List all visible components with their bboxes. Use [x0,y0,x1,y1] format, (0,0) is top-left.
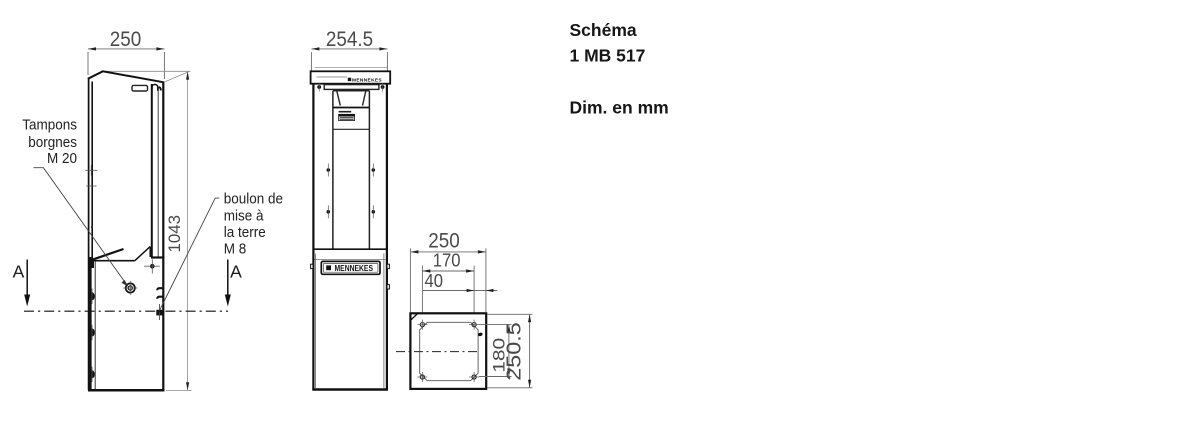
svg-text:boulon de: boulon de [224,191,283,208]
svg-text:40: 40 [425,270,444,291]
svg-text:170: 170 [433,250,461,271]
svg-text:250: 250 [110,28,142,51]
svg-text:MENNEKES: MENNEKES [335,264,374,273]
svg-text:1043: 1043 [165,215,184,253]
svg-text:MENNEKES: MENNEKES [352,77,382,83]
svg-text:254.5: 254.5 [326,28,373,51]
svg-text:borgnes: borgnes [28,134,77,151]
svg-text:Tampons: Tampons [22,117,77,134]
svg-text:A: A [13,261,25,281]
svg-text:mise à: mise à [224,208,264,225]
svg-text:A: A [230,261,242,281]
svg-text:Schéma: Schéma [570,20,637,40]
svg-text:1 MB 517: 1 MB 517 [570,46,646,66]
svg-text:M 8: M 8 [224,241,247,258]
svg-text:Dim. en mm: Dim. en mm [570,98,669,118]
svg-text:250.5: 250.5 [504,322,526,381]
svg-text:M 20: M 20 [47,150,77,167]
svg-text:la terre: la terre [224,224,266,241]
